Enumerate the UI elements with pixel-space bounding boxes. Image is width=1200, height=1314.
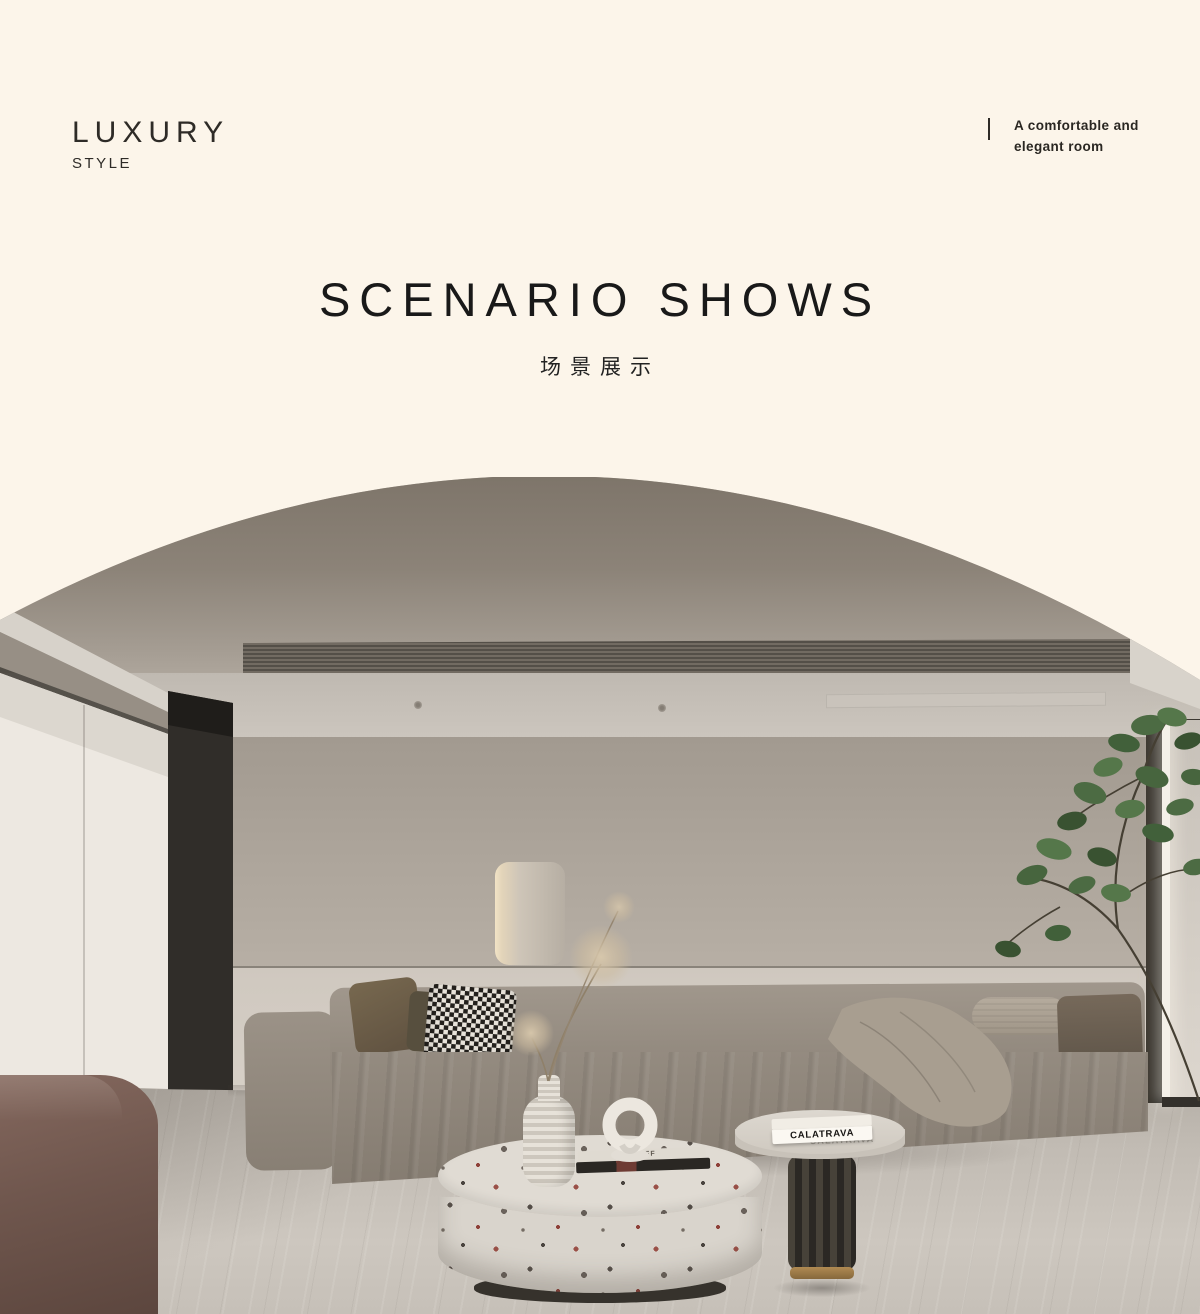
section-subtitle-cn: 场景展示 <box>0 351 1200 381</box>
brand-block: LUXURY STYLE <box>72 116 229 172</box>
brand-subtitle: STYLE <box>72 155 229 172</box>
bench-highlight <box>0 1075 122 1121</box>
scenario-photo: CALATRAVA CALATRAVA STOFF <box>0 477 1200 1314</box>
knot-sculpture <box>609 1104 651 1162</box>
tagline-text: A comfortable and elegant room <box>1014 116 1174 158</box>
section-title: SCENARIO SHOWS <box>0 272 1200 327</box>
page: LUXURY STYLE A comfortable and elegant r… <box>0 0 1200 1314</box>
brand-title: LUXURY <box>72 116 229 150</box>
tagline-block: A comfortable and elegant room <box>988 116 1174 158</box>
flowers-overlay <box>0 477 1200 1314</box>
tagline-divider <box>988 118 990 140</box>
dried-flowers <box>508 891 635 1081</box>
